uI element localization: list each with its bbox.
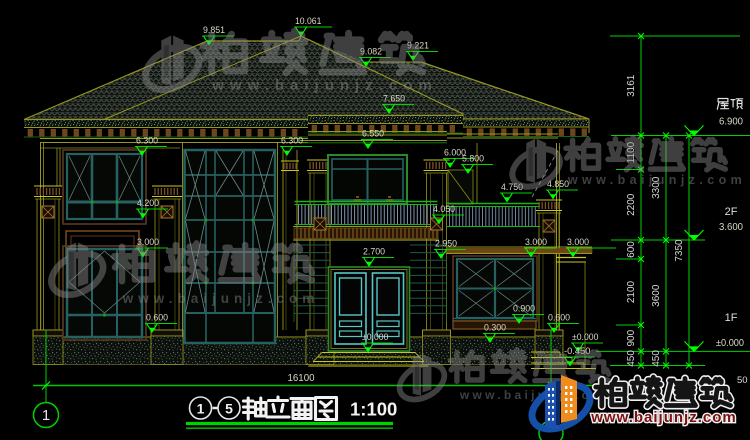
svg-text:900: 900 — [626, 329, 637, 346]
svg-text:2.950: 2.950 — [435, 239, 457, 250]
svg-text:4.050: 4.050 — [433, 204, 455, 215]
svg-text:3.000: 3.000 — [567, 237, 589, 248]
svg-text:3.600: 3.600 — [719, 222, 743, 233]
svg-text:0.600: 0.600 — [548, 313, 570, 324]
svg-text:2F: 2F — [725, 206, 738, 218]
svg-text:7.650: 7.650 — [383, 94, 405, 105]
svg-text:1F: 1F — [725, 312, 738, 324]
svg-text:±0.000: ±0.000 — [716, 338, 744, 349]
svg-text:6.300: 6.300 — [136, 136, 158, 147]
svg-text:±0.000: ±0.000 — [572, 332, 598, 343]
svg-text:3161: 3161 — [626, 74, 637, 97]
svg-text:3.000: 3.000 — [525, 237, 547, 248]
svg-text:1:100: 1:100 — [350, 399, 397, 420]
svg-text:±0.000: ±0.000 — [362, 332, 388, 343]
svg-text:6.550: 6.550 — [362, 129, 384, 140]
svg-text:0.600: 0.600 — [146, 313, 168, 324]
svg-text:5.800: 5.800 — [462, 154, 484, 165]
svg-text:450: 450 — [626, 350, 637, 367]
svg-text:6.300: 6.300 — [281, 136, 303, 147]
svg-text:www.baijunjz.com: www.baijunjz.com — [122, 291, 320, 306]
svg-text:1: 1 — [197, 401, 205, 417]
svg-text:50: 50 — [737, 375, 748, 386]
svg-text:www.baijunjz.com: www.baijunjz.com — [211, 77, 437, 94]
svg-text:2100: 2100 — [626, 280, 637, 303]
svg-text:6.900: 6.900 — [719, 117, 743, 128]
svg-text:3600: 3600 — [651, 284, 662, 307]
svg-text:600: 600 — [626, 241, 637, 258]
svg-text:7350: 7350 — [674, 239, 685, 262]
svg-text:www.baijunjz.com: www.baijunjz.com — [567, 173, 746, 187]
svg-text:1: 1 — [42, 407, 50, 424]
svg-text:0.900: 0.900 — [513, 304, 535, 315]
svg-text:0.300: 0.300 — [484, 323, 506, 334]
svg-text:2200: 2200 — [626, 193, 637, 216]
svg-text:www.baijunjz.com: www.baijunjz.com — [590, 409, 736, 426]
svg-text:2.700: 2.700 — [363, 247, 385, 258]
svg-text:450: 450 — [651, 350, 662, 367]
svg-text:10.061: 10.061 — [295, 16, 321, 27]
svg-text:16100: 16100 — [288, 373, 315, 384]
svg-text:5: 5 — [225, 401, 233, 417]
svg-text:4.200: 4.200 — [137, 198, 159, 209]
